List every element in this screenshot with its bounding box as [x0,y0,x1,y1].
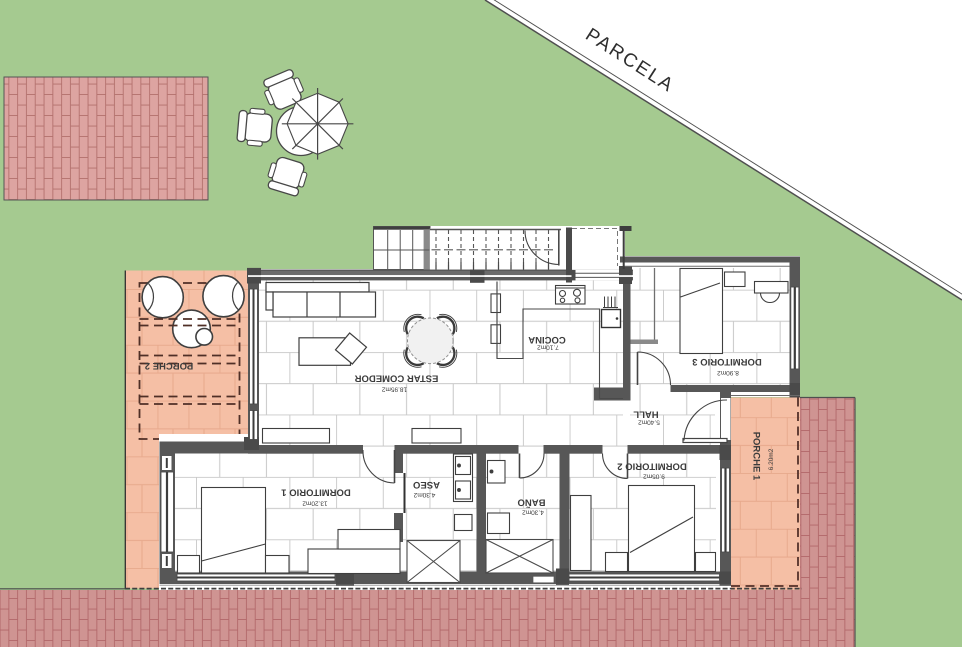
svg-text:4.30m2: 4.30m2 [522,509,544,516]
svg-text:COCINA: COCINA [528,334,566,345]
svg-text:5.40m2: 5.40m2 [638,419,660,426]
svg-text:HALL: HALL [633,409,659,420]
svg-text:BAÑO: BAÑO [518,497,546,509]
svg-text:PORCHE 2: PORCHE 2 [145,360,194,371]
svg-text:ESTAR COMEDOR: ESTAR COMEDOR [354,373,438,384]
svg-text:DORMITORIO 2: DORMITORIO 2 [617,461,687,472]
svg-text:13.20m2: 13.20m2 [302,500,328,507]
svg-text:7.10m2: 7.10m2 [537,344,559,351]
svg-text:18.95m2: 18.95m2 [381,386,407,393]
svg-text:4.30m2: 4.30m2 [413,491,435,498]
svg-text:DORMITORIO 3: DORMITORIO 3 [692,356,762,367]
svg-text:PORCHE 1: PORCHE 1 [751,432,762,481]
svg-text:9.05m2: 9.05m2 [643,473,665,480]
svg-text:DORMITORIO 1: DORMITORIO 1 [281,487,351,498]
svg-text:8.90m2: 8.90m2 [717,369,739,376]
svg-text:6.20m2: 6.20m2 [768,448,775,470]
svg-text:ASEO: ASEO [413,479,440,490]
